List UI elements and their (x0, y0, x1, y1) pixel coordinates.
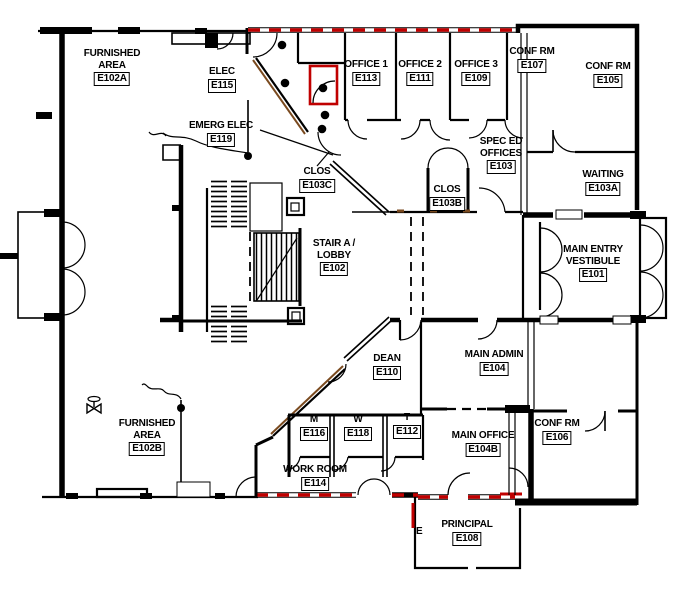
room-label-toilet-m-e116: ME116 (300, 414, 328, 441)
room-number-tag: E114 (301, 477, 329, 491)
room-label-emerg-elec-e119: EMERG ELECE119 (189, 120, 253, 147)
room-label-elec-e115: ELECE115 (208, 66, 236, 93)
room-label-office-1-e113: OFFICE 1E113 (344, 59, 387, 86)
room-name: CONF RM (509, 46, 554, 58)
room-name: CONF RM (585, 61, 630, 73)
room-label-toilet-w-e118: WE118 (344, 414, 372, 441)
room-name: WAITING (582, 169, 623, 181)
room-name: ELEC (208, 66, 236, 78)
room-number-tag: E109 (462, 72, 491, 86)
stair-group (160, 145, 304, 343)
room-name: CLOS (299, 166, 335, 178)
room-label-main-office-e104b: MAIN OFFICEE104B (452, 430, 515, 457)
room-label-furnished-area-e102a: FURNISHED AREAE102A (84, 48, 141, 86)
room-number-tag: E103B (429, 197, 465, 211)
room-name: CONF RM (534, 418, 579, 430)
room-name: OFFICE 1 (344, 59, 387, 71)
room-label-clos-e103c: CLOSE103C (299, 166, 335, 193)
room-name: SPEC ED OFFICES (480, 136, 523, 159)
room-number-tag: E108 (453, 532, 482, 546)
room-label-dean-e110: DEANE110 (373, 353, 401, 380)
room-number-tag: E112 (393, 425, 421, 439)
room-number-tag: E104 (480, 362, 509, 376)
room-name: FURNISHED AREA (119, 418, 176, 441)
west-vestibule (18, 209, 85, 321)
room-label-spec-ed-offices-e103: SPEC ED OFFICESE103 (480, 136, 523, 174)
room-number-tag: E102B (129, 442, 165, 456)
room-name: T (393, 412, 421, 424)
room-name: W (344, 414, 372, 426)
room-name: M (300, 414, 328, 426)
room-number-tag: E104B (465, 443, 501, 457)
room-number-tag: E102A (94, 72, 130, 86)
room-label-office-3-e109: OFFICE 3E109 (454, 59, 497, 86)
room-name: PRINCIPAL (441, 519, 492, 531)
room-name: CLOS (429, 184, 465, 196)
room-name: EMERG ELEC (189, 120, 253, 132)
room-label-office-2-e111: OFFICE 2E111 (398, 59, 441, 86)
room-number-tag: E119 (207, 133, 235, 147)
floorplan-linework (0, 0, 680, 595)
room-label-principal-e108: PRINCIPALE108 (441, 519, 492, 546)
room-number-tag: E103 (487, 160, 516, 174)
room-number-tag: E115 (208, 79, 236, 93)
room-label-main-admin-e104: MAIN ADMINE104 (465, 349, 524, 376)
room-label-toilet-t-e112: TE112 (393, 412, 421, 439)
floor-plan-canvas: FURNISHED AREAE102A ELECE115 EMERG ELECE… (0, 0, 680, 595)
room-name: FURNISHED AREA (84, 48, 141, 71)
room-label-furnished-area-e102b: FURNISHED AREAE102B (119, 418, 176, 456)
room-number-tag: E107 (518, 59, 547, 73)
room-number-tag: E111 (406, 72, 433, 86)
stray-e-label: E (416, 526, 423, 537)
room-name: MAIN ENTRY VESTIBULE (563, 244, 623, 267)
room-number-tag: E101 (579, 268, 608, 282)
room-number-tag: E103C (299, 179, 335, 193)
room-number-tag: E113 (352, 72, 380, 86)
room-number-tag: E116 (300, 427, 328, 441)
room-name: DEAN (373, 353, 401, 365)
room-label-conf-rm-e106: CONF RME106 (534, 418, 579, 445)
room-number-tag: E110 (373, 366, 401, 380)
room-label-conf-rm-e105: CONF RME105 (585, 61, 630, 88)
room-label-clos-e103b: CLOSE103B (429, 184, 465, 211)
room-name: WORK ROOM (283, 464, 347, 476)
room-name: STAIR A / LOBBY (313, 238, 355, 261)
room-number-tag: E106 (543, 431, 572, 445)
room-name: OFFICE 3 (454, 59, 497, 71)
room-label-stair-a-lobby-e102: STAIR A / LOBBYE102 (313, 238, 355, 276)
room-number-tag: E118 (344, 427, 372, 441)
room-label-work-room-e114: WORK ROOME114 (283, 464, 347, 491)
room-label-conf-rm-e107: CONF RME107 (509, 46, 554, 73)
room-number-tag: E105 (594, 74, 623, 88)
room-name: MAIN OFFICE (452, 430, 515, 442)
room-name: MAIN ADMIN (465, 349, 524, 361)
room-number-tag: E102 (320, 262, 349, 276)
room-name: OFFICE 2 (398, 59, 441, 71)
room-label-waiting-e103a: WAITINGE103A (582, 169, 623, 196)
room-number-tag: E103A (585, 182, 621, 196)
room-label-main-entry-vestibule-e101: MAIN ENTRY VESTIBULEE101 (563, 244, 623, 282)
